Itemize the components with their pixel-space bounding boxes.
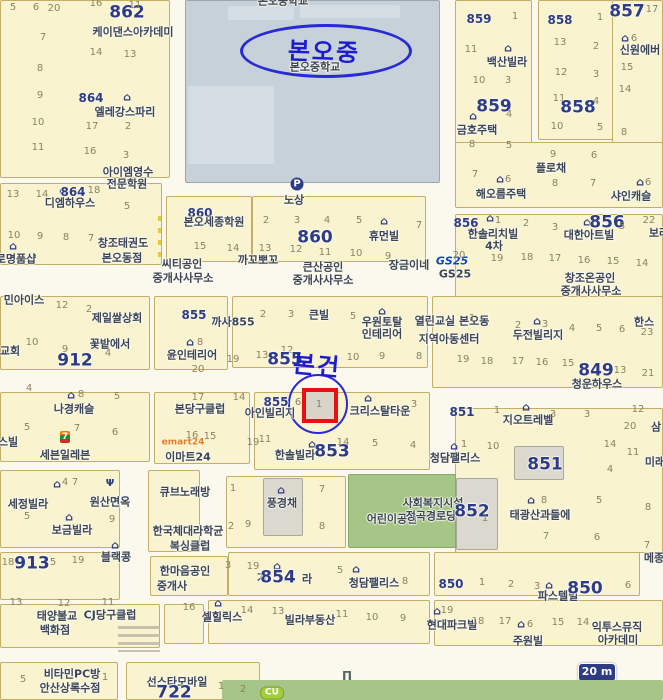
parcel-number: 17 (86, 122, 99, 132)
building-label: 창조태권도 (98, 238, 149, 249)
building-label: 중개사사무소 (293, 275, 354, 286)
house-icon: ⌂ (469, 111, 477, 122)
parcel-number: 6 (505, 175, 511, 185)
parcel-number: 11 (336, 610, 349, 620)
parcel-number: 14 (90, 48, 103, 58)
house-icon: ⌂ (636, 177, 644, 188)
building-label: 케이댄스아카데미 (93, 27, 174, 38)
parcel-number: 9 (109, 515, 115, 525)
parcel-number: 11 (627, 448, 640, 458)
building-label: 까사855 (211, 317, 254, 328)
parcel-number: 11 (129, 1, 142, 11)
parcel-number: 8 (552, 179, 558, 189)
parcel-number: 5 (50, 558, 56, 568)
parcel-number: 10 (366, 613, 379, 623)
parcel-number: 15 (204, 432, 217, 442)
parcel-number: 10 (26, 338, 39, 348)
parcel-number: 11 (259, 435, 272, 445)
building-label: 중개사사무소 (561, 286, 622, 297)
parcel-number: 8 (63, 233, 69, 243)
parcel-number: 11 (465, 45, 478, 55)
building-label: 백산빌라 (487, 57, 527, 68)
parcel-number: 7 (74, 424, 80, 434)
building-label: 디엠하우스 (45, 198, 96, 209)
parcel-number: 5 (596, 324, 602, 334)
building-label: 셀힐릭스 (202, 612, 242, 623)
parcel-number: 8 (37, 64, 43, 74)
parcel-number: 11 (32, 143, 45, 153)
parcel-number: 1 (218, 682, 224, 692)
house-icon: ⌂ (214, 598, 222, 609)
building-label: 비타민PC방 (44, 669, 101, 680)
parcel-number: 2 (125, 122, 131, 132)
parcel-number: 1 (494, 406, 500, 416)
parcel-number: 22 (643, 216, 656, 226)
block-number: 913 (14, 556, 50, 573)
building-label: 인테리어 (362, 329, 402, 340)
building-label: 한스 (634, 317, 654, 328)
parcel-number: 13 (7, 190, 20, 200)
building-label: 백화점 (40, 625, 70, 636)
parcel-number: 14 (241, 606, 254, 616)
parcel-number: 6 (112, 428, 118, 438)
building-label: 블랙콩 (101, 552, 131, 563)
parcel-number: 9 (245, 520, 251, 530)
building-label: 스빌 (0, 437, 18, 448)
parcel-number: 6 (631, 34, 637, 44)
building-label: 이마트24 (165, 452, 211, 463)
building-label: 제일쌀상회 (92, 313, 143, 324)
parcel-number: 20 (453, 251, 466, 261)
building-label: 현대파크빌 (427, 620, 478, 631)
parcel-number: 8 (78, 390, 84, 400)
building-label: 복싱클럽 (170, 541, 210, 552)
house-icon: ⌂ (53, 479, 61, 490)
house-icon: ⌂ (486, 213, 494, 224)
building-label: 열린교실 본오동 (415, 316, 490, 327)
parcel-number: 16 (183, 603, 196, 613)
building-label: 본오중학교 (258, 0, 309, 7)
parcel-number: 13 (554, 38, 567, 48)
building-label: 창조온공인 (565, 273, 616, 284)
parcel-number: 9 (379, 352, 385, 362)
parcel-number: 1 (461, 440, 467, 450)
house-icon: ⌂ (277, 485, 285, 496)
parcel-number: 9 (37, 91, 43, 101)
block-number: 858 (560, 100, 596, 117)
school-path-1 (228, 6, 294, 20)
building-label: 미래 (645, 457, 663, 468)
shop-bag-icon: ⌂ (9, 241, 17, 252)
parcel-number: 10 (487, 442, 500, 452)
building-label: 본당구클럽 (175, 404, 226, 415)
parcel-number: 4 (324, 216, 330, 226)
parcel-number: 6 (625, 581, 631, 591)
building-label: 큰산공인 (303, 262, 343, 273)
house-icon: ⌂ (65, 512, 73, 523)
parcel-number: 5 (372, 439, 378, 449)
parcel-number: 13 (10, 598, 23, 608)
parcel-number: 15 (562, 359, 575, 369)
building-label: 윤인테리어 (167, 350, 218, 361)
parcel-number: 12 (555, 68, 568, 78)
parcel-number: 7 (416, 221, 422, 231)
building-label: 크리스탈타운 (350, 406, 411, 417)
lane-dashes (158, 216, 161, 260)
building-label: 정곡경로당 (406, 511, 457, 522)
building-label: 노상 (284, 195, 304, 206)
parcel-number: 4 (410, 441, 416, 451)
seven-eleven-icon: 7 (60, 431, 70, 443)
building-label: 지오트레벨 (503, 415, 554, 426)
building-label: 원산면옥 (90, 497, 130, 508)
parcel-number: 2 (240, 685, 246, 695)
building-label: 안산상록수점 (40, 683, 101, 694)
parcel-number: 6 (527, 620, 533, 630)
parcel-number: 10 (350, 249, 363, 259)
parcel-number: 5 (20, 675, 26, 685)
parcel-number: 20 (624, 422, 637, 432)
parcel-number: 5 (350, 312, 356, 322)
parcel-number: 18 (472, 617, 485, 627)
building-label: 빌라부동산 (285, 615, 336, 626)
parcel-number: 19 (72, 556, 85, 566)
building-label: 메종 (644, 553, 663, 564)
building-label: 본오세종학원 (184, 217, 245, 228)
house-icon: ⌂ (621, 33, 629, 44)
house-icon: ⌂ (496, 174, 504, 185)
school-path-2 (300, 5, 400, 18)
parcel-number: 7 (543, 532, 549, 542)
block-number: 912 (57, 353, 93, 370)
parcel-number: 4 (62, 478, 68, 488)
building-label: 중개사사무소 (153, 273, 214, 284)
parcel-number: 3 (584, 410, 590, 420)
parcel-number: 6 (619, 325, 625, 335)
parcel-number: 13 (614, 366, 627, 376)
restaurant-icon: Ψ (106, 479, 115, 489)
building-label: 청담팰리스 (430, 453, 481, 464)
parcel-number: 10 (473, 76, 486, 86)
parcel-number: 4 (506, 110, 512, 120)
scale-text: 20 m (582, 665, 613, 678)
parcel-number: 8 (319, 522, 325, 532)
building-label: 지역아동센터 (419, 334, 480, 345)
parcel-number: 13 (272, 607, 285, 617)
parcel-number: 19 (247, 438, 260, 448)
parcel-number: 1 (469, 314, 475, 324)
building-label: 한국체대라학균 (153, 526, 224, 537)
parcel-number: 10 (32, 118, 45, 128)
parcel-number: 5 (10, 3, 16, 13)
building-label: 금호주택 (457, 125, 497, 136)
block-number-small: 855 (181, 309, 206, 321)
parcel-number: 12 (632, 405, 645, 415)
building-label: 태광산과들에 (510, 510, 571, 521)
building-label: 플로채 (536, 163, 566, 174)
parcel-number: 2 (508, 580, 514, 590)
parcel-number: 21 (642, 369, 655, 379)
house-icon: ⌂ (533, 316, 541, 327)
block-number-small: 850 (438, 578, 463, 590)
building-label: 아인빌리지 (245, 408, 296, 419)
parcel-number: 4 (26, 384, 32, 394)
building-label: 보금빌라 (52, 525, 92, 536)
building-label: 샤인캐슬 (611, 191, 651, 202)
house-icon: ⌂ (522, 402, 530, 413)
building-label: CJ당구클럽 (84, 610, 137, 621)
parcel-number: 1 (479, 578, 485, 588)
block-number-small: 858 (547, 14, 572, 26)
building-label: 민아이스 (4, 295, 44, 306)
parcel-number: 19 (247, 562, 260, 572)
parcel-number: 20 (48, 4, 61, 14)
parcel-number: 1 (482, 514, 488, 524)
parcel-number: 14 (233, 393, 246, 403)
parcel-number: 6 (594, 533, 600, 543)
parcel-number: 3 (123, 151, 129, 161)
building-label: 신원에버 (620, 45, 660, 56)
building-label: 중개사 (157, 581, 187, 592)
parcel-number: 5 (619, 222, 625, 232)
building-label: 큰빌 (309, 310, 329, 321)
building-label: 태양불교 (37, 611, 77, 622)
building-label: 까꼬뽀꼬 (238, 255, 278, 266)
building-label: 청담팰리스 (349, 578, 400, 589)
block-number-small: 851 (449, 406, 474, 418)
parcel-number: 5 (506, 141, 512, 151)
parcel-number: 8 (469, 140, 475, 150)
parcel-number: 2 (263, 216, 269, 226)
parcel-number: 5 (24, 423, 30, 433)
parcel-number: 16 (536, 358, 549, 368)
parcel-number: 4 (105, 349, 111, 359)
parcel-number: 14 (577, 618, 590, 628)
parcel-number: 18 (2, 558, 15, 568)
building-label: 주원빌 (513, 636, 543, 647)
parcel-number: 1 (316, 400, 322, 410)
house-icon: ⌂ (517, 619, 525, 630)
house-icon: ⌂ (527, 495, 535, 506)
house-icon: ⌂ (450, 441, 458, 452)
parcel-number: 15 (607, 257, 620, 267)
parcel-number: 11 (319, 248, 332, 258)
building-label: GS25 (439, 269, 471, 280)
building-label: 보라 (649, 228, 663, 239)
parcel-number: 18 (88, 186, 101, 196)
parcel-number: 5 (596, 496, 602, 506)
parcel-number: 8 (645, 503, 651, 513)
building-label: 라 (302, 574, 312, 585)
parcel-number: 8 (621, 128, 627, 138)
parcel-number: 2 (260, 310, 266, 320)
building-label: 청운하우스 (572, 379, 623, 390)
parcel-number: 15 (621, 63, 634, 73)
parcel-number: 17 (646, 5, 659, 15)
parcel-number: 18 (481, 357, 494, 367)
parcel-number: 5 (114, 392, 120, 402)
parcel-number: 23 (641, 328, 654, 338)
parcel-number: 18 (521, 253, 534, 263)
parcel-number: 6 (33, 3, 39, 13)
building-label: 풍경채 (267, 498, 297, 509)
parcel-number: 12 (58, 599, 71, 609)
building-label: 씨티공인 (162, 259, 202, 270)
annotation-label: 본건 (292, 352, 342, 380)
house-icon: ⌂ (380, 216, 388, 227)
parcel-number: 11 (102, 598, 115, 608)
building-label: 로명품샵 (0, 254, 36, 265)
emart24-logo: emart24 (162, 439, 205, 448)
shop-bag-icon: ⌂ (123, 92, 131, 103)
parcel-number: 3 (411, 400, 417, 410)
parcel-number: 3 (552, 223, 558, 233)
building-label: 세정빌라 (8, 499, 48, 510)
parcel-number: 7 (72, 478, 78, 488)
building-label: 우원토탈 (362, 317, 402, 328)
parcel-number: 14 (337, 438, 350, 448)
house-icon: ⌂ (364, 393, 372, 404)
building-label: 큐브노래방 (160, 487, 211, 498)
parcel-number: 7 (88, 234, 94, 244)
parcel-number: 5 (597, 123, 603, 133)
parcel-number: 6 (591, 151, 597, 161)
parcel-number: 9 (37, 232, 43, 242)
parcel-number: 7 (590, 179, 596, 189)
parcel-number: 2 (593, 42, 599, 52)
block-number: 860 (297, 230, 333, 247)
building-label: 엘레강스파리 (95, 107, 156, 118)
building-label: 익투스뮤직 (592, 622, 643, 633)
parcel-number: 4 (607, 465, 613, 475)
house-icon: ⌂ (111, 540, 119, 551)
parcel-number: 4 (593, 97, 599, 107)
parcel-number: 6 (295, 398, 301, 408)
parcel-number: 1 (102, 673, 108, 683)
parcel-number: 17 (192, 393, 205, 403)
parking-icon: P (291, 178, 304, 191)
house-icon: ⌂ (67, 390, 75, 401)
map-canvas[interactable]: 20 m 8625620161171413891011864⌂엘레강스파리172… (0, 0, 663, 700)
parcel-number: 14 (227, 244, 240, 254)
parcel-number: 8 (197, 338, 203, 348)
parcel-number: 14 (636, 259, 649, 269)
building-label: 한솔리치빌 (468, 229, 519, 240)
parcel-number: 8 (541, 496, 547, 506)
parcel-number: 3 (593, 70, 599, 80)
parcel-number: 17 (512, 357, 525, 367)
parcel-number: 1 (512, 12, 518, 22)
parcel-number: 2 (228, 522, 234, 532)
building-label: 한솔빌라 (275, 450, 315, 461)
parcel-number: 10 (347, 353, 360, 363)
parcel-number: 7 (40, 33, 46, 43)
building-label: 아이엠영수 (103, 167, 154, 178)
building-label: 휴먼빌 (369, 231, 399, 242)
building-label: 4차 (485, 241, 503, 252)
parcel-number: 3 (550, 410, 556, 420)
building-label: 전문학원 (107, 179, 147, 190)
parcel-number: 16 (578, 256, 591, 266)
block-number: 854 (260, 570, 296, 587)
house-icon: ⌂ (504, 43, 512, 54)
parcel-number: 19 (457, 355, 470, 365)
building-label: 한마음공인 (160, 566, 211, 577)
school-yard (188, 86, 274, 164)
cu-logo: CU (260, 687, 284, 700)
parcel-number: 4 (569, 324, 575, 334)
building-label: 본오동점 (102, 253, 142, 264)
parcel-number: 19 (491, 254, 504, 264)
building-label: 두전빌리지 (513, 330, 564, 341)
parcel-number: 12 (290, 245, 303, 255)
parcel-number: 9 (400, 614, 406, 624)
parcel-number: 15 (552, 618, 565, 628)
parcel-number: 10 (551, 122, 564, 132)
parcel-number: 7 (472, 170, 478, 180)
parcel-number: 16 (84, 147, 97, 157)
parcel-number: 3 (505, 76, 511, 86)
parcel-number: 3 (288, 310, 294, 320)
parcel-number: 5 (337, 566, 343, 576)
block-number: 851 (527, 457, 563, 474)
crosswalk (118, 626, 160, 652)
block-number-small: 864 (78, 92, 103, 104)
building-label: 세븐일레븐 (40, 450, 91, 461)
parcel-number: 8 (402, 577, 408, 587)
parcel-number: 5 (24, 512, 30, 522)
parcel-number: 9 (550, 150, 556, 160)
block-number: 722 (156, 685, 192, 700)
building-label: 나경캐슬 (54, 404, 94, 415)
parcel-number: 12 (56, 301, 69, 311)
parcel-number: 13 (259, 244, 272, 254)
house-icon: ⌂ (352, 564, 360, 575)
parcel-number: 3 (294, 216, 300, 226)
annotation-label: 본오중 (287, 39, 360, 66)
parcel-number: 14 (604, 440, 617, 450)
parcel-number: 2 (523, 219, 529, 229)
parcel-number: 1 (495, 216, 501, 226)
parcel-number: 5 (356, 216, 362, 226)
block-number-small: 859 (466, 13, 491, 25)
parcel-number: 20 (192, 365, 205, 375)
parcel-number: 17 (499, 617, 512, 627)
parcel-number: 1 (230, 484, 236, 494)
parcel-number: 1 (597, 13, 603, 23)
parcel-number: 19 (441, 606, 454, 616)
parcel-number: 19 (227, 355, 240, 365)
parcel-number: 15 (194, 242, 207, 252)
block-number: 857 (609, 4, 645, 21)
parcel-number: 7 (319, 485, 325, 495)
block-857 (612, 0, 663, 160)
building-label: 아카데미 (598, 635, 638, 646)
parcel-number: 6 (645, 178, 651, 188)
parcel-number: 3 (225, 561, 231, 571)
building-label: 삼 (651, 422, 661, 433)
block-nosang (252, 196, 426, 262)
parcel-number: 13 (124, 50, 137, 60)
shop-bag-icon: ⌂ (186, 337, 194, 348)
green-strip-bottom (222, 680, 663, 700)
block-number: 850 (567, 581, 603, 598)
building-label: 장금이네 (389, 260, 429, 271)
parcel-number: 5 (124, 202, 130, 212)
park-gate-icon: Π (342, 670, 352, 682)
building-label: 해오름주택 (476, 189, 527, 200)
parcel-number: 8 (416, 352, 422, 362)
